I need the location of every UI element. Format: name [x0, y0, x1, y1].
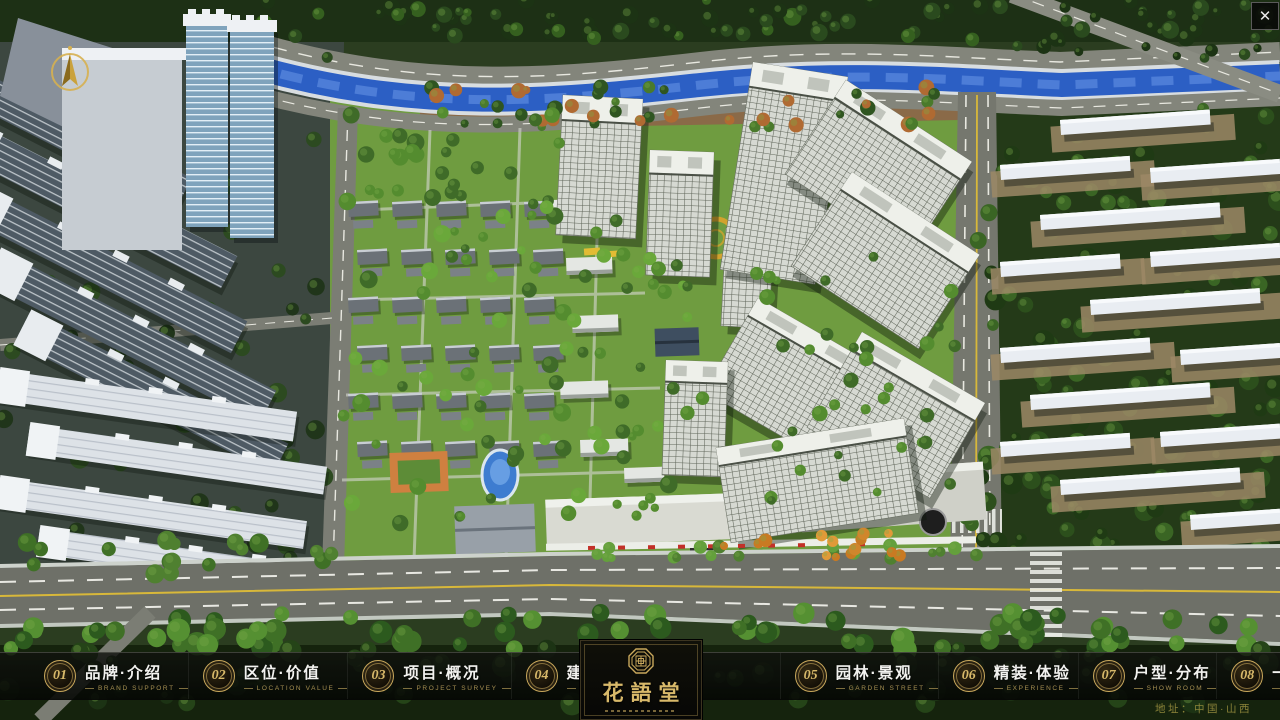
nav-item-unit-layout[interactable]: 07 户型·分布 SHOW ROOM [1078, 653, 1217, 699]
nav-item-project-survey[interactable]: 03 项目·概况 PROJECT SURVEY [347, 653, 510, 699]
nav-number-badge: 04 [526, 660, 558, 692]
application-window: ✕ 01 品牌·介绍 BRAND SUPPORT 02 区位·价值 LOCATI… [0, 0, 1280, 720]
nav-item-title: 户型·分布 [1134, 661, 1211, 683]
nav-item-room-view[interactable]: 08 一房·一景 COMMUNITY [1216, 653, 1280, 699]
nav-number-badge: 03 [362, 660, 394, 692]
logo-tagline-rule [605, 710, 677, 712]
nav-item-title: 品牌·介绍 [85, 661, 162, 683]
nav-item-subtitle: GARDEN STREET [836, 685, 938, 692]
project-address: 地址：中国·山西 [1155, 701, 1252, 716]
nav-number-badge: 07 [1093, 660, 1125, 692]
nav-item-subtitle: EXPERIENCE [994, 685, 1078, 692]
nav-number-badge: 06 [953, 660, 985, 692]
nav-number-badge: 05 [795, 660, 827, 692]
compass-north-indicator[interactable] [44, 40, 96, 98]
project-logo-title: 花語堂 [596, 677, 687, 707]
close-icon: ✕ [1259, 9, 1272, 24]
nav-item-title: 区位·价值 [244, 661, 321, 683]
nav-number-badge: 01 [44, 660, 76, 692]
nav-item-title: 精装·体验 [994, 661, 1071, 683]
nav-number-badge: 02 [203, 660, 235, 692]
close-button[interactable]: ✕ [1251, 2, 1279, 30]
nav-item-subtitle: BRAND SUPPORT [85, 685, 188, 692]
nav-item-subtitle: SHOW ROOM [1134, 685, 1217, 692]
project-logo-panel[interactable]: 花語堂 [580, 640, 702, 720]
masterplan-render-viewport[interactable] [0, 0, 1280, 720]
nav-item-experience[interactable]: 06 精装·体验 EXPERIENCE [938, 653, 1078, 699]
nav-item-subtitle: PROJECT SURVEY [403, 685, 510, 692]
nav-item-title: 园林·景观 [836, 661, 913, 683]
nav-zone-right: 05 园林·景观 GARDEN STREET 06 精装·体验 EXPERIEN… [780, 653, 1280, 699]
nav-zone-left: 01 品牌·介绍 BRAND SUPPORT 02 区位·价值 LOCATION… [0, 653, 660, 699]
seal-emblem-icon [628, 648, 654, 674]
nav-item-subtitle: COMMUNITY [1272, 685, 1280, 692]
nav-item-subtitle: LOCATION VALUE [244, 685, 348, 692]
nav-item-location-value[interactable]: 02 区位·价值 LOCATION VALUE [188, 653, 348, 699]
nav-item-title: 项目·概况 [403, 661, 480, 683]
nav-item-title: 一房·一景 [1272, 661, 1280, 683]
nav-item-garden-landscape[interactable]: 05 园林·景观 GARDEN STREET [780, 653, 938, 699]
nav-item-brand-intro[interactable]: 01 品牌·介绍 BRAND SUPPORT [30, 653, 188, 699]
nav-number-badge: 08 [1231, 660, 1263, 692]
